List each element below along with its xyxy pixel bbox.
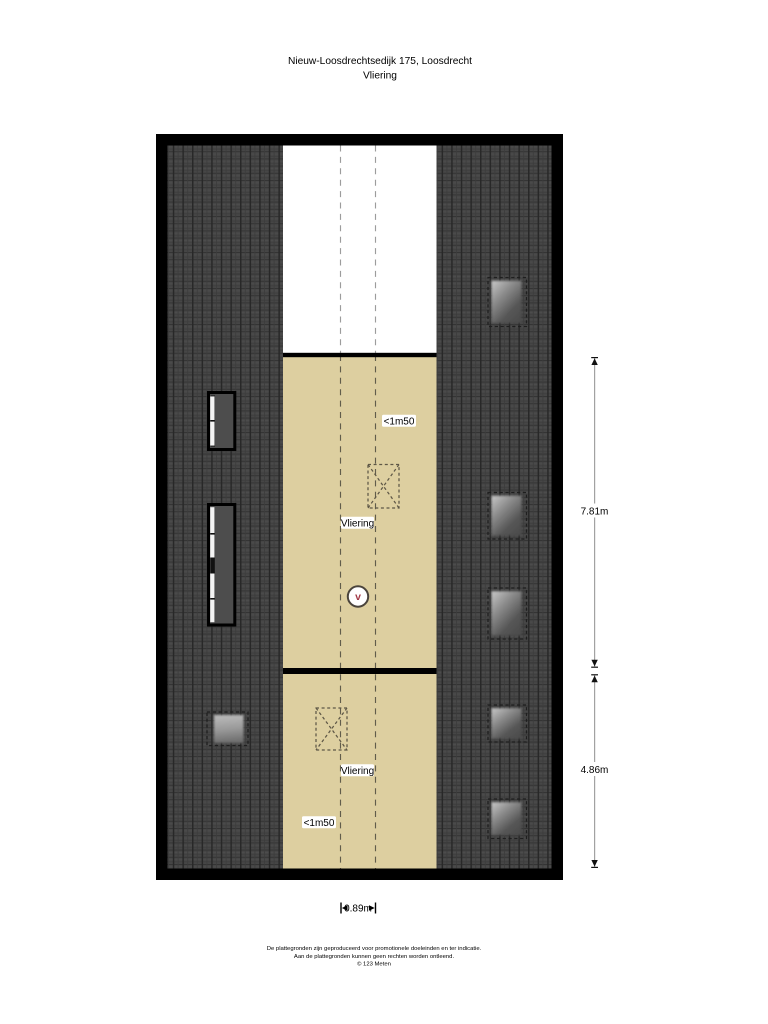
svg-text:Vliering: Vliering	[341, 519, 374, 530]
svg-text:<1m50: <1m50	[384, 417, 415, 428]
svg-text:Vliering: Vliering	[341, 766, 374, 777]
svg-text:Vliering: Vliering	[363, 70, 397, 81]
svg-text:0.89m: 0.89m	[344, 904, 372, 915]
svg-text:© 123 Meten: © 123 Meten	[357, 961, 391, 968]
svg-text:Aan de plattegronden kunnen ge: Aan de plattegronden kunnen geen rechten…	[294, 954, 455, 960]
svg-text:Nieuw-Loosdrechtsedijk 175, Lo: Nieuw-Loosdrechtsedijk 175, Loosdrecht	[288, 56, 472, 67]
svg-text:De plattegronden zijn geproduc: De plattegronden zijn geproduceerd voor …	[267, 946, 482, 952]
svg-text:<1m50: <1m50	[304, 818, 335, 829]
svg-text:7.81m: 7.81m	[581, 507, 609, 518]
svg-text:4.86m: 4.86m	[581, 765, 609, 776]
svg-text:v: v	[355, 591, 361, 603]
